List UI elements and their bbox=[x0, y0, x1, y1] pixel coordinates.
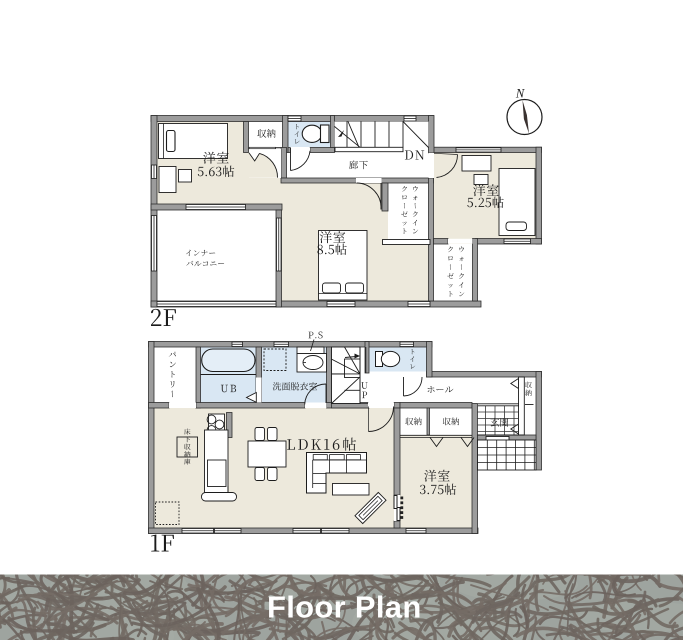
svg-text:Floor Plan: Floor Plan bbox=[267, 590, 422, 625]
svg-text:N: N bbox=[515, 87, 525, 101]
